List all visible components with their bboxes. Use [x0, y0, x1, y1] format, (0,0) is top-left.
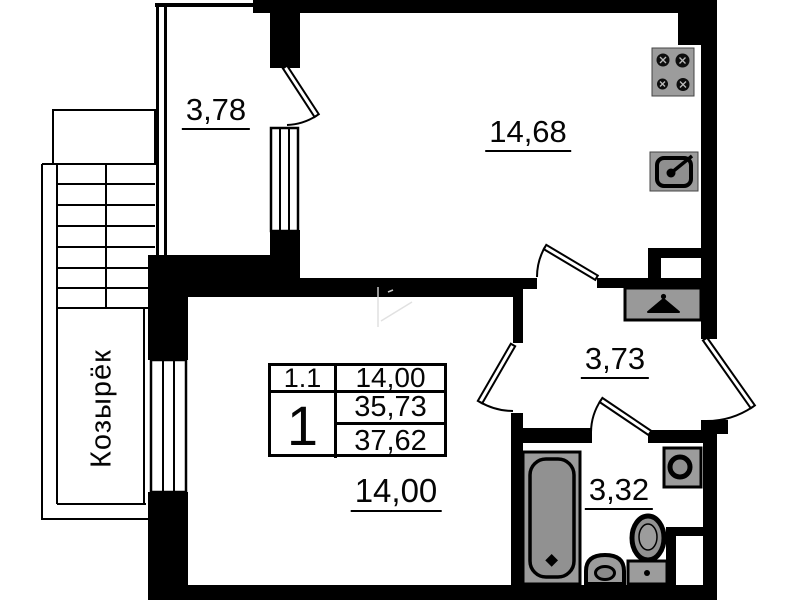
floor-plan: 3,78 14,68 3,73 14,00 3,32 Козырёк 1.1 1… [0, 0, 799, 600]
wall [521, 278, 537, 289]
entrance-door-leaf [703, 338, 755, 409]
duct-opening [661, 258, 701, 278]
apartment-info-table: 1.1 14,00 1 35,73 37,62 [268, 363, 447, 457]
bathroom-area-label: 3,32 [585, 474, 653, 510]
balcony-wall [155, 3, 255, 7]
canopy-label: Козырёк [84, 303, 120, 515]
living-room-door-swing-arc [480, 402, 513, 411]
unit-number-cell: 1.1 [271, 366, 337, 393]
bathroom-door-leaf [600, 398, 652, 435]
living-room-door-leaf [478, 344, 515, 404]
wall [270, 230, 300, 257]
hallway-area-label: 3,73 [581, 343, 649, 379]
kitchen-sink-icon [650, 152, 698, 191]
living-room-area-label: 14,00 [351, 474, 442, 512]
entrance-door-swing-arc [705, 407, 753, 421]
wall [703, 420, 717, 600]
wall [148, 585, 717, 600]
overall-area-cell: 37,62 [337, 425, 444, 458]
kitchen-area-label: 14,68 [485, 116, 571, 152]
balcony-wall [156, 3, 159, 257]
washing-machine-icon [664, 448, 701, 487]
rooms-count-cell: 1 [271, 393, 337, 458]
unit-area-cell: 14,00 [337, 366, 444, 393]
stairs [42, 110, 155, 308]
wall [522, 428, 592, 443]
wall [148, 492, 188, 600]
hanger-wardrobe-icon [625, 288, 701, 320]
kitchen-door-swing-arc [537, 247, 545, 277]
bathtub-icon [523, 452, 580, 584]
wall [270, 0, 300, 68]
wall [511, 413, 523, 590]
bathroom-door-swing-arc [591, 400, 601, 432]
stair-landing [53, 110, 155, 164]
balcony-door-swing-arc [287, 116, 317, 125]
living-room-window [151, 360, 186, 492]
kitchen-door-leaf [544, 245, 598, 280]
wash-basin-icon [586, 555, 624, 584]
balcony-area-label: 3,78 [182, 94, 250, 130]
balcony-door-leaf [283, 66, 319, 117]
stove-icon [652, 48, 694, 96]
wall [648, 430, 703, 443]
wall [253, 0, 695, 13]
balcony-window [271, 128, 298, 231]
wall [701, 13, 717, 339]
toilet-icon [628, 516, 667, 584]
wall [183, 278, 523, 297]
balcony-wall [164, 3, 167, 257]
living-area-cell: 35,73 [337, 393, 444, 425]
